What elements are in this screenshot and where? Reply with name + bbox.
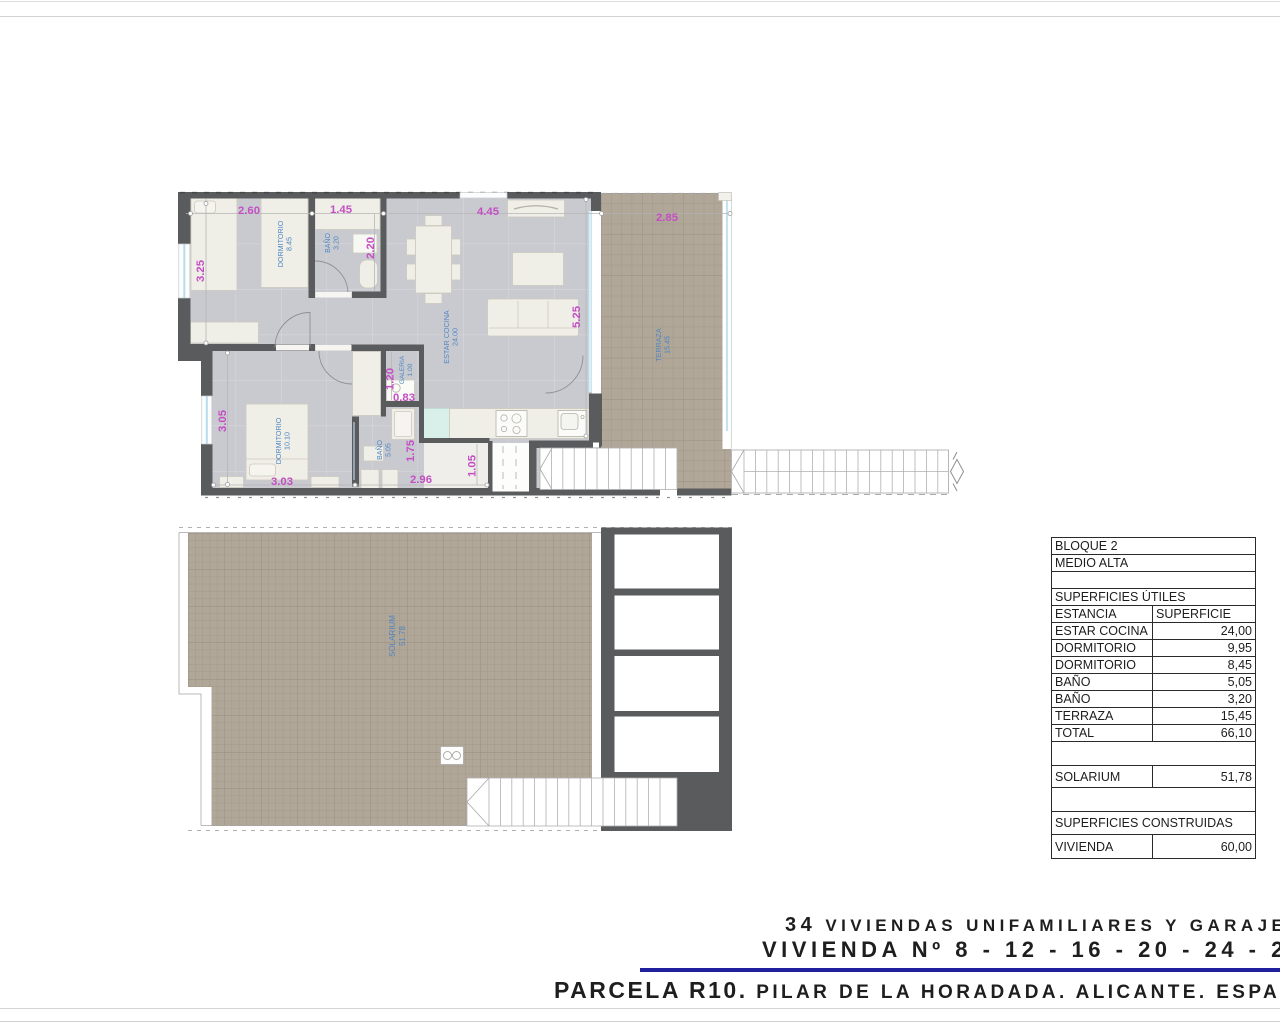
svg-text:1.20: 1.20 [385, 368, 397, 390]
svg-text:3.03: 3.03 [271, 476, 293, 488]
svg-text:2.85: 2.85 [656, 212, 678, 224]
svg-text:3.05: 3.05 [217, 410, 229, 432]
svg-text:0.83: 0.83 [393, 392, 415, 404]
svg-text:1.75: 1.75 [405, 440, 417, 462]
svg-text:3.25: 3.25 [195, 260, 207, 282]
svg-text:2.96: 2.96 [410, 474, 432, 486]
svg-text:2.60: 2.60 [238, 205, 260, 217]
svg-text:4.45: 4.45 [477, 206, 499, 218]
svg-text:2.20: 2.20 [365, 237, 377, 259]
svg-text:1.45: 1.45 [330, 204, 352, 216]
svg-text:1.05: 1.05 [467, 455, 479, 477]
svg-text:5.25: 5.25 [571, 306, 583, 328]
